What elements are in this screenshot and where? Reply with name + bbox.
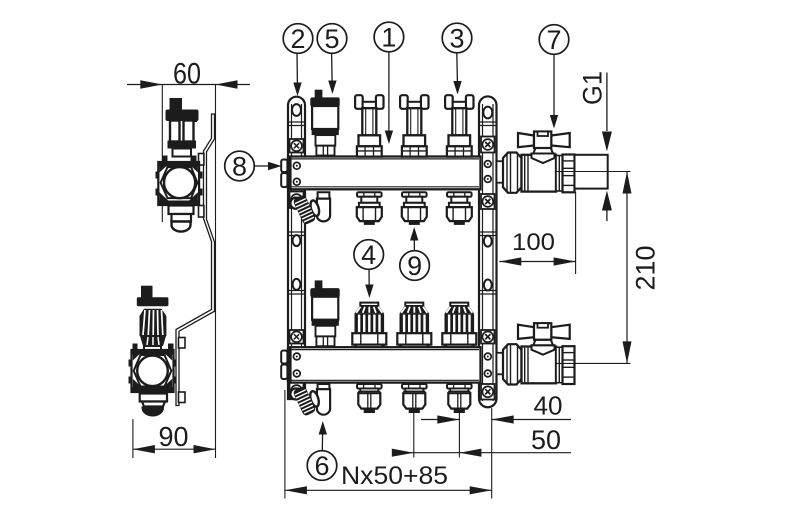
svg-text:210: 210: [631, 246, 661, 291]
svg-text:2: 2: [290, 24, 305, 54]
svg-text:90: 90: [159, 421, 189, 452]
svg-text:4: 4: [361, 240, 376, 270]
svg-text:5: 5: [324, 24, 339, 54]
svg-text:60: 60: [173, 58, 201, 91]
svg-text:7: 7: [546, 25, 561, 55]
svg-text:Nx50+85: Nx50+85: [341, 462, 448, 490]
svg-text:6: 6: [314, 451, 329, 481]
svg-text:8: 8: [232, 152, 247, 182]
svg-text:G1: G1: [578, 71, 608, 105]
svg-text:3: 3: [449, 24, 464, 54]
svg-text:50: 50: [531, 425, 561, 455]
svg-text:40: 40: [534, 391, 563, 421]
svg-text:9: 9: [407, 251, 422, 281]
svg-text:1: 1: [381, 23, 396, 53]
svg-text:100: 100: [512, 229, 555, 256]
